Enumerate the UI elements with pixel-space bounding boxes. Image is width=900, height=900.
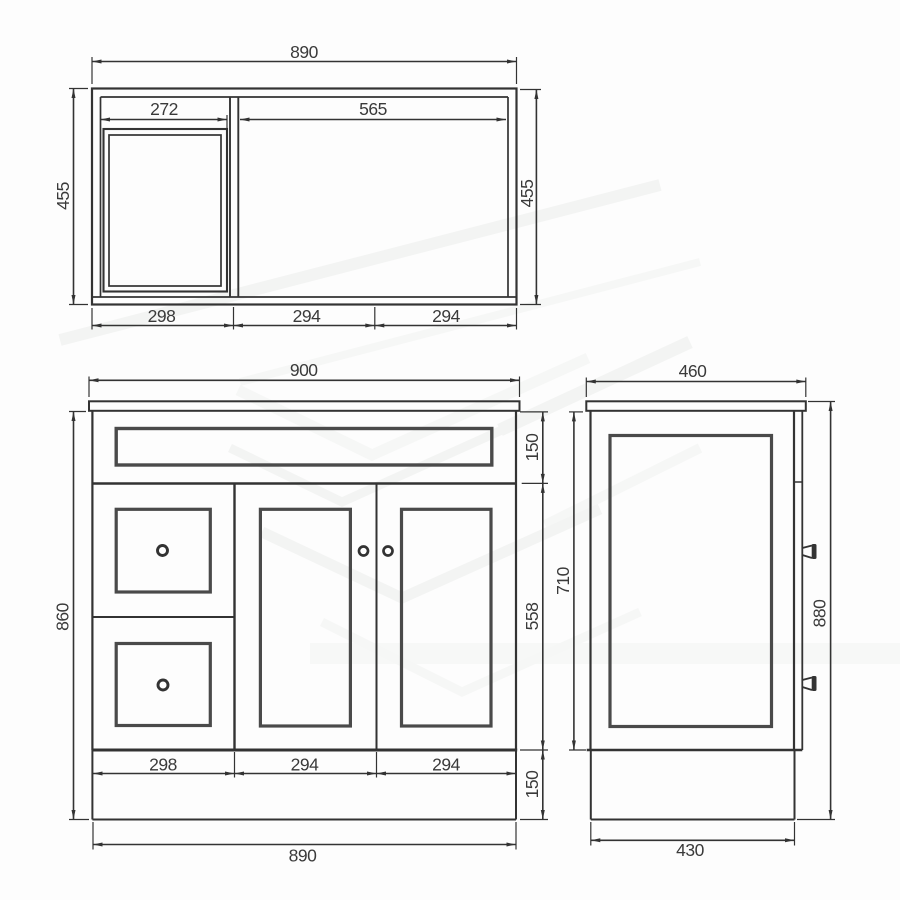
- svg-text:294: 294: [432, 755, 460, 775]
- svg-text:294: 294: [432, 306, 460, 326]
- svg-text:150: 150: [522, 770, 542, 798]
- svg-text:430: 430: [676, 840, 704, 860]
- svg-text:294: 294: [293, 306, 321, 326]
- svg-text:558: 558: [522, 603, 542, 631]
- svg-text:900: 900: [290, 360, 318, 380]
- svg-text:272: 272: [150, 99, 178, 119]
- svg-text:565: 565: [359, 99, 387, 119]
- svg-text:455: 455: [517, 180, 537, 208]
- svg-text:890: 890: [290, 42, 318, 62]
- svg-text:460: 460: [679, 361, 707, 381]
- svg-text:710: 710: [553, 566, 573, 594]
- svg-text:880: 880: [810, 599, 830, 627]
- svg-text:890: 890: [289, 846, 317, 866]
- svg-text:298: 298: [148, 306, 176, 326]
- svg-text:294: 294: [291, 755, 319, 775]
- svg-text:150: 150: [522, 433, 542, 461]
- svg-text:455: 455: [53, 182, 73, 210]
- svg-text:860: 860: [53, 602, 73, 630]
- svg-text:298: 298: [149, 755, 177, 775]
